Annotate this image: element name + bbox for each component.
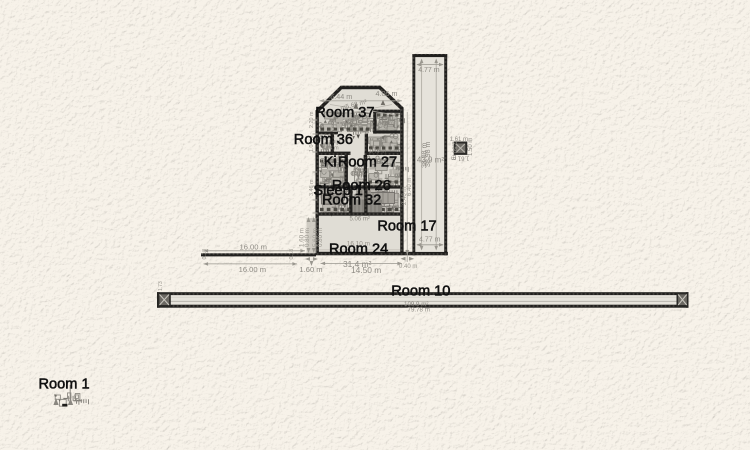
svg-text:Room 37: Room 37 [315, 105, 374, 121]
svg-text:0.80 m: 0.80 m [317, 228, 324, 247]
svg-text:1.50 m: 1.50 m [468, 138, 474, 156]
svg-text:Room 36: Room 36 [294, 132, 353, 148]
svg-text:Room 27: Room 27 [338, 154, 397, 170]
svg-text:0.18: 0.18 [202, 249, 208, 260]
svg-text:14.50 m: 14.50 m [351, 265, 381, 275]
svg-text:Room 32: Room 32 [322, 193, 381, 209]
svg-text:6.44 m: 6.44 m [330, 92, 352, 101]
svg-text:16.00 m: 16.00 m [240, 242, 267, 251]
svg-text:0.80 m: 0.80 m [304, 228, 311, 247]
svg-text:0.18: 0.18 [289, 249, 295, 260]
svg-text:Room 24: Room 24 [329, 241, 388, 257]
svg-text:Room 10: Room 10 [391, 283, 450, 299]
svg-text:0.40 m: 0.40 m [399, 264, 417, 270]
svg-text:Room 17: Room 17 [377, 219, 436, 235]
svg-text:3.9 m²: 3.9 m² [378, 120, 396, 127]
svg-text:38.98 m: 38.98 m [422, 143, 429, 168]
svg-text:Ki: Ki [324, 154, 337, 170]
svg-text:79.78 m: 79.78 m [408, 307, 430, 314]
svg-text:4.77 m: 4.77 m [419, 237, 441, 244]
svg-text:1.73: 1.73 [158, 281, 164, 291]
svg-text:5.06 m²: 5.06 m² [350, 216, 370, 222]
svg-text:16.00 m: 16.00 m [239, 265, 266, 274]
svg-text:2.20 m: 2.20 m [309, 111, 315, 128]
svg-text:4.05 m: 4.05 m [376, 89, 398, 98]
svg-text:2.50 m: 2.50 m [450, 142, 456, 160]
svg-text:Room 1: Room 1 [39, 376, 90, 392]
svg-text:6.40 m: 6.40 m [407, 178, 413, 196]
svg-text:1.60 m: 1.60 m [299, 265, 322, 274]
svg-text:4.77 m: 4.77 m [418, 67, 440, 74]
